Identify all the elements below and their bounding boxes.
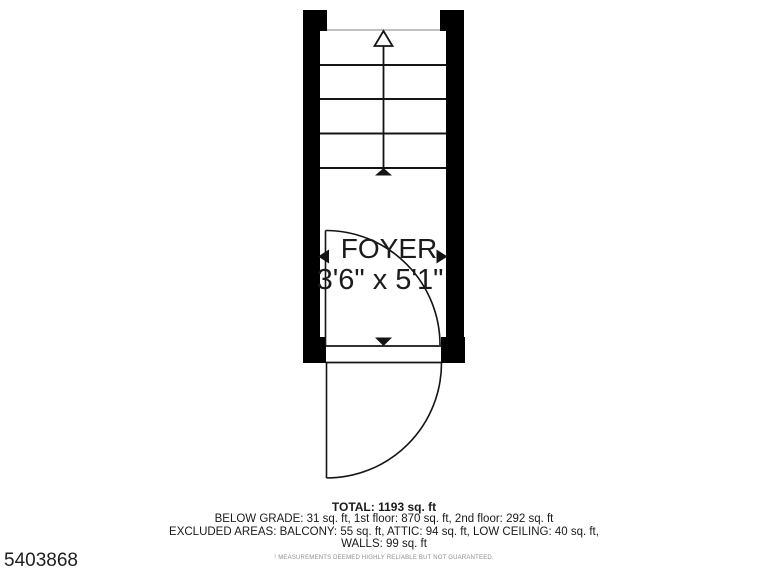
- summary-total: TOTAL: 1193 sq. ft: [0, 501, 768, 513]
- photo-id: 5403868: [4, 551, 78, 570]
- wall-left-bottom-block: [303, 337, 326, 363]
- room-name-label: FOYER: [289, 235, 489, 263]
- wall-right-top-cap: [440, 10, 464, 31]
- wall-left: [303, 10, 320, 363]
- floor-plan-page: FOYER 3'6" x 5'1" TOTAL: 1193 sq. ft BEL…: [0, 0, 768, 576]
- summary-disclaimer: ¹ MEASUREMENTS DEEMED HIGHLY RELIABLE BU…: [0, 555, 768, 562]
- wall-left-top-cap: [303, 10, 327, 31]
- wall-right-bottom-block: [441, 337, 465, 363]
- stair-direction-arrow: [375, 31, 393, 170]
- dimension-marker-down-icon: [375, 338, 392, 347]
- wall-right: [446, 10, 464, 363]
- door-swing-arc-outer: [327, 363, 442, 478]
- door-outer: [327, 363, 442, 478]
- area-summary: TOTAL: 1193 sq. ft BELOW GRADE: 31 sq. f…: [0, 501, 768, 562]
- summary-excluded-line2: WALLS: 99 sq. ft: [0, 538, 768, 550]
- dimension-marker-up-icon: [375, 168, 392, 176]
- room-dimensions-label: 3'6" x 5'1": [280, 266, 480, 295]
- summary-excluded-line1: EXCLUDED AREAS: BALCONY: 55 sq. ft, ATTI…: [0, 526, 768, 538]
- doorway-threshold: [326, 346, 441, 363]
- stair-arrow-head: [375, 31, 393, 46]
- summary-breakdown: BELOW GRADE: 31 sq. ft, 1st floor: 870 s…: [0, 513, 768, 525]
